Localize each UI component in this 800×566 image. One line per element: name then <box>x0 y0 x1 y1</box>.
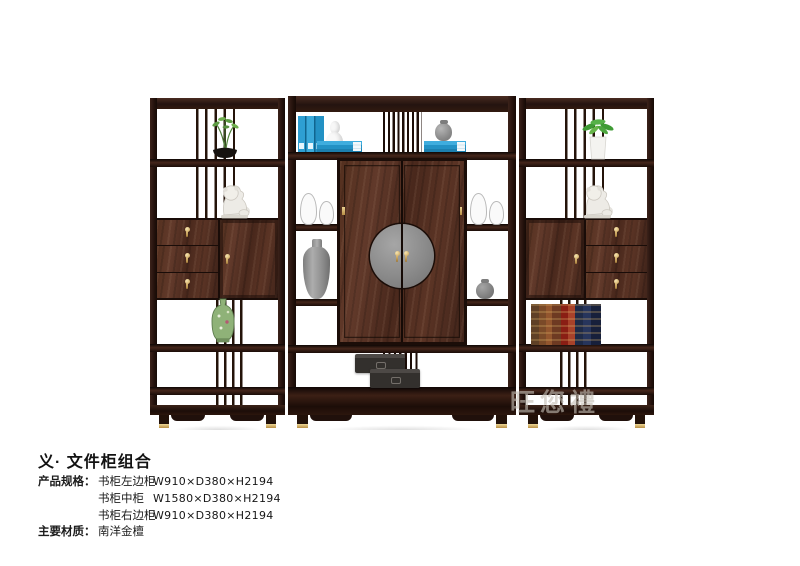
drawer-stack <box>157 220 218 298</box>
potted-green-plant <box>579 115 617 160</box>
bottom-rail <box>150 405 285 415</box>
door-pull-icon <box>574 254 579 259</box>
bottom-board <box>288 387 516 415</box>
leather-books-row <box>531 304 601 345</box>
edge-hinge-icon <box>460 207 463 215</box>
drawer-pull-icon <box>614 253 619 258</box>
spec-label: 产品规格： <box>38 474 98 491</box>
cabinet-door <box>526 220 586 298</box>
shelf <box>150 344 285 352</box>
drawer-cabinet-section <box>526 218 647 300</box>
spec-dims: W910×D380×H2194 <box>153 475 274 488</box>
drawer <box>157 246 218 272</box>
floor-shadow <box>296 424 508 430</box>
apron <box>230 415 264 421</box>
product-photo <box>146 96 658 432</box>
drawer-pull-icon <box>614 227 619 232</box>
center-cabinet-unit <box>288 96 516 432</box>
top-rail <box>519 98 654 109</box>
right-post <box>278 98 285 415</box>
spec-list: 产品规格：书柜左边柜W910×D380×H2194 书柜中柜W1580×D380… <box>38 473 281 541</box>
drawer <box>586 220 647 246</box>
drawer-pull-icon <box>614 279 619 284</box>
gray-jar <box>435 123 452 141</box>
apron <box>599 415 633 421</box>
left-post <box>288 96 296 415</box>
slat-panel-top <box>383 110 422 154</box>
spec-name: 书柜右边柜 <box>98 508 153 525</box>
spec-row: 书柜中柜W1580×D380×H2194 <box>38 490 281 507</box>
drawer <box>157 220 218 246</box>
material-row: 主要材质：南洋金檀 <box>38 524 281 541</box>
blue-books-stack <box>424 141 466 152</box>
right-post <box>508 96 516 415</box>
gray-urn-vase <box>303 246 330 299</box>
shelf <box>150 159 285 167</box>
black-gift-box <box>370 369 420 388</box>
product-title: 义· 文件柜组合 <box>38 448 152 472</box>
door-knob-icon <box>395 251 400 256</box>
side-shelf <box>467 224 508 231</box>
material-value: 南洋金檀 <box>98 524 153 541</box>
floor-shadow <box>527 424 646 430</box>
spec-row: 产品规格：书柜左边柜W910×D380×H2194 <box>38 473 281 490</box>
left-post <box>519 98 526 415</box>
right-side-cabinet <box>519 98 654 432</box>
material-label: 主要材质： <box>38 524 98 541</box>
top-rail <box>288 96 516 112</box>
top-rail <box>150 98 285 109</box>
apron <box>310 415 352 421</box>
spec-name: 书柜左边柜 <box>98 474 153 491</box>
edge-hinge-icon <box>342 207 345 215</box>
spec-name: 书柜中柜 <box>98 491 153 508</box>
side-shelf <box>296 299 337 306</box>
foo-dog-statue <box>214 182 252 219</box>
cabinet-door <box>218 220 278 298</box>
door-gap <box>401 161 403 342</box>
drawer-pull-icon <box>185 253 190 258</box>
glass-vases <box>469 188 505 225</box>
side-shelf <box>296 224 337 231</box>
drawer <box>157 273 218 298</box>
left-post <box>150 98 157 415</box>
drawer-pull-icon <box>185 279 190 284</box>
spec-row: 书柜右边柜W910×D380×H2194 <box>38 507 281 524</box>
shelf <box>288 345 516 353</box>
apron <box>452 415 494 421</box>
door-pull-icon <box>225 254 230 259</box>
center-two-door-cabinet <box>337 158 467 345</box>
green-porcelain-vase <box>208 298 238 344</box>
door-knob-icon <box>404 251 409 256</box>
left-side-cabinet <box>150 98 285 432</box>
apron <box>171 415 205 421</box>
blue-books-stack <box>317 141 362 152</box>
drawer <box>586 246 647 272</box>
drawer <box>586 273 647 298</box>
floor-shadow <box>158 424 277 430</box>
side-shelf <box>467 299 508 306</box>
small-gray-jar <box>476 282 494 299</box>
right-post <box>647 98 654 415</box>
shelf <box>519 344 654 352</box>
catalog-page: 旺您禮 义· 文件柜组合 产品规格：书柜左边柜W910×D380×H2194 书… <box>0 0 800 566</box>
brand-watermark: 旺您禮 <box>510 383 600 419</box>
shelf <box>519 159 654 167</box>
drawer-cabinet-section <box>157 218 278 300</box>
drawer-pull-icon <box>185 227 190 232</box>
foo-dog-statue <box>577 182 615 219</box>
spec-dims: W910×D380×H2194 <box>153 509 274 522</box>
shelf <box>150 387 285 395</box>
spec-dims: W1580×D380×H2194 <box>153 492 281 505</box>
glass-vases <box>299 188 335 225</box>
drawer-stack <box>586 220 647 298</box>
bonsai-plant <box>206 111 244 159</box>
